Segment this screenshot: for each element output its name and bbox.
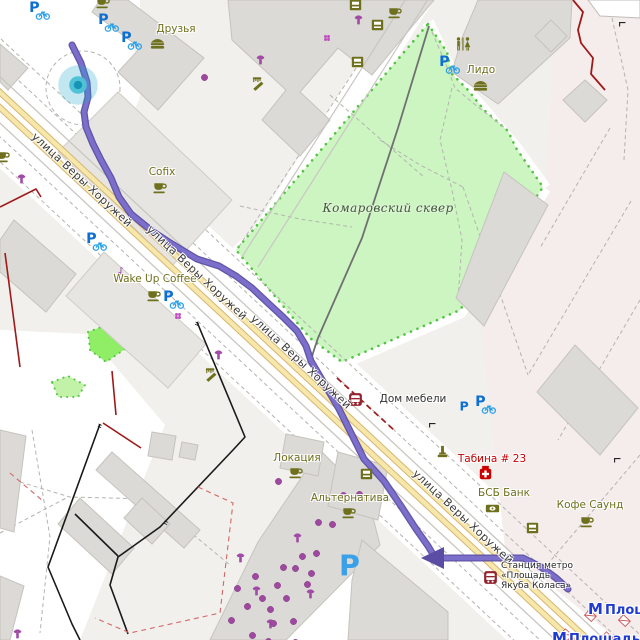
tree-dot xyxy=(275,470,282,489)
poi-wake-up-coffee-icon[interactable] xyxy=(145,286,164,309)
svg-text:P: P xyxy=(460,399,469,414)
poi-cofix-icon[interactable] xyxy=(151,178,170,201)
metro-label-text: Площа xyxy=(605,603,640,618)
clothes-icon xyxy=(254,52,267,71)
location-dot-icon[interactable] xyxy=(56,63,100,111)
tree-dot xyxy=(280,556,287,575)
atm-icon xyxy=(523,519,542,542)
metro-label-text: Площадь Я xyxy=(569,632,640,640)
beauty-icon xyxy=(321,29,333,48)
poi-lido-label[interactable]: Лидо xyxy=(467,64,495,76)
hairdresser-icon xyxy=(249,74,268,97)
corner-mark-icon xyxy=(612,452,625,471)
poi-kofe-saund-icon[interactable] xyxy=(578,512,597,535)
poi-kofe-saund-label[interactable]: Кофе Саунд xyxy=(557,499,624,511)
parking-large-icon[interactable]: P xyxy=(333,550,363,584)
parking-bike-icon[interactable]: P xyxy=(28,0,50,25)
tree-dot xyxy=(299,545,306,564)
poi-lokacia-label[interactable]: Локация xyxy=(273,452,320,464)
poi-lokacia-icon[interactable] xyxy=(287,463,306,486)
tree-dot xyxy=(290,610,297,629)
corner-mark-icon xyxy=(617,16,630,35)
parking-icon[interactable]: P xyxy=(455,397,473,419)
poi-wake-up-coffee-label[interactable]: Wake Up Coffee xyxy=(113,273,196,285)
svg-text:P: P xyxy=(339,550,360,580)
poi-dom-mebeli-label[interactable]: Дом мебели xyxy=(380,393,447,405)
monument-icon xyxy=(433,443,452,466)
poi-tabina-label[interactable]: Табина # 23 xyxy=(458,453,526,465)
poi-alternativa-label[interactable]: Альтернатива xyxy=(311,492,389,504)
tree-dot xyxy=(304,573,311,592)
clothes-icon xyxy=(234,550,247,569)
cafe-icon xyxy=(386,3,405,26)
tree-dot xyxy=(244,595,251,614)
tree-dot xyxy=(249,624,256,640)
parking-bike-icon[interactable]: P xyxy=(120,29,142,55)
tree-dot xyxy=(259,587,266,606)
tree-dot xyxy=(228,609,235,628)
map-canvas[interactable]: PPPPPPPPPДрузьяЛидоCofixWake Up CoffeeЛо… xyxy=(0,0,640,640)
metro-station-line1: Станция метро xyxy=(501,561,573,571)
poi-cofix-label[interactable]: Cofix xyxy=(149,166,176,178)
cafe-icon xyxy=(94,0,113,16)
poi-lido-icon[interactable] xyxy=(471,77,490,100)
cafe-icon xyxy=(0,147,13,170)
corner-mark-icon xyxy=(427,417,440,436)
clothes-icon xyxy=(352,12,365,31)
tree-dot xyxy=(265,630,272,640)
park-label: Комаровский сквер xyxy=(322,201,453,215)
tree-dot xyxy=(292,557,299,576)
tree-dot xyxy=(252,565,259,584)
clothes-icon xyxy=(15,171,28,190)
metro-station-line3: Якуба Коласа» xyxy=(501,581,573,591)
gate-tick-icon xyxy=(160,515,173,534)
poi-bsb-bank-label[interactable]: БСБ Банк xyxy=(478,487,530,499)
poi-alternativa-icon[interactable] xyxy=(340,503,359,526)
parking-bike-icon[interactable]: P xyxy=(474,393,496,419)
tree-dot xyxy=(292,631,299,640)
parking-bike-icon[interactable]: P xyxy=(85,230,107,256)
gate-tick-icon xyxy=(94,418,107,437)
poi-metro-stop-icon[interactable] xyxy=(482,569,499,590)
metro-station-line2: «Площадь xyxy=(501,571,573,581)
tree-dot xyxy=(270,612,277,631)
clothes-icon xyxy=(11,626,24,640)
poi-bsb-bank-icon[interactable] xyxy=(483,499,502,522)
metro-label-ploshchad-2[interactable]: МПлощадь Я xyxy=(552,629,640,640)
tree-dot xyxy=(313,542,320,561)
tree-dot xyxy=(234,577,241,596)
gate-tick-icon xyxy=(191,316,204,335)
poi-druzya-label[interactable]: Друзья xyxy=(156,23,195,35)
hairdresser-icon xyxy=(202,365,221,388)
poi-tabina-icon[interactable] xyxy=(476,464,495,487)
clothes-icon xyxy=(212,347,225,366)
beauty-icon xyxy=(172,307,184,326)
metro-m-icon: М xyxy=(588,600,603,618)
metro-station-label[interactable]: Станция метро «Площадь Якуба Коласа» xyxy=(501,561,573,591)
atm-icon xyxy=(348,53,367,76)
tree-dot xyxy=(329,513,336,532)
atm-icon xyxy=(368,16,387,39)
tree-dot xyxy=(201,66,208,85)
metro-label-ploshchad[interactable]: МПлоща xyxy=(588,600,640,618)
tree-dot xyxy=(283,587,290,606)
metro-m-icon: М xyxy=(552,629,567,640)
tree-dot xyxy=(315,511,322,530)
poi-druzya-icon[interactable] xyxy=(148,35,167,58)
toilets-icon xyxy=(453,35,473,59)
tree-dot xyxy=(274,574,281,593)
